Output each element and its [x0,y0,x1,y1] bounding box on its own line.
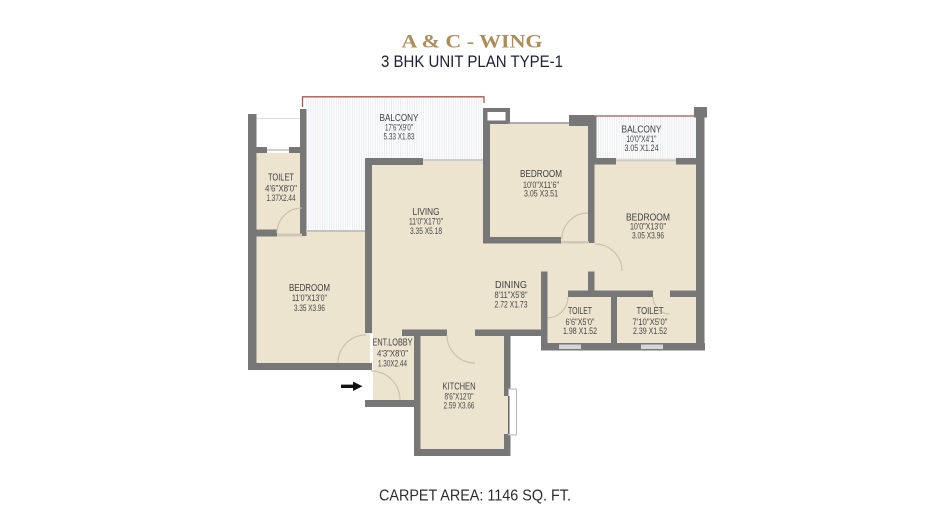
svg-text:3.05 X3.51: 3.05 X3.51 [524,189,558,200]
svg-text:3 BHK UNIT PLAN TYPE-1: 3 BHK UNIT PLAN TYPE-1 [381,53,563,71]
svg-text:TOILET: TOILET [637,306,664,317]
svg-text:3.35 X3.96: 3.35 X3.96 [294,303,325,314]
svg-text:1.37X2.44: 1.37X2.44 [267,193,296,204]
svg-text:TOILET: TOILET [568,306,592,317]
svg-text:BEDROOM: BEDROOM [520,168,562,180]
svg-text:CARPET AREA: 1146 SQ. FT.: CARPET AREA: 1146 SQ. FT. [379,488,571,505]
svg-text:1.98 X1.52: 1.98 X1.52 [563,326,597,337]
svg-text:A & C - WING: A & C - WING [402,32,543,53]
svg-text:2.59 X3.66: 2.59 X3.66 [444,401,475,412]
svg-text:2.39 X1.52: 2.39 X1.52 [633,326,667,337]
svg-text:1.30X2.44: 1.30X2.44 [378,359,407,370]
svg-text:3.05 X1.24: 3.05 X1.24 [625,143,659,154]
svg-text:3.05 X3.96: 3.05 X3.96 [632,231,664,242]
svg-text:2.72 X1.73: 2.72 X1.73 [495,300,528,311]
svg-text:3.35 X5.18: 3.35 X5.18 [410,226,442,237]
svg-text:ENT.LOBBY: ENT.LOBBY [373,337,413,349]
svg-text:5.33 X1.83: 5.33 X1.83 [384,132,415,143]
svg-text:TOILET: TOILET [268,172,294,184]
